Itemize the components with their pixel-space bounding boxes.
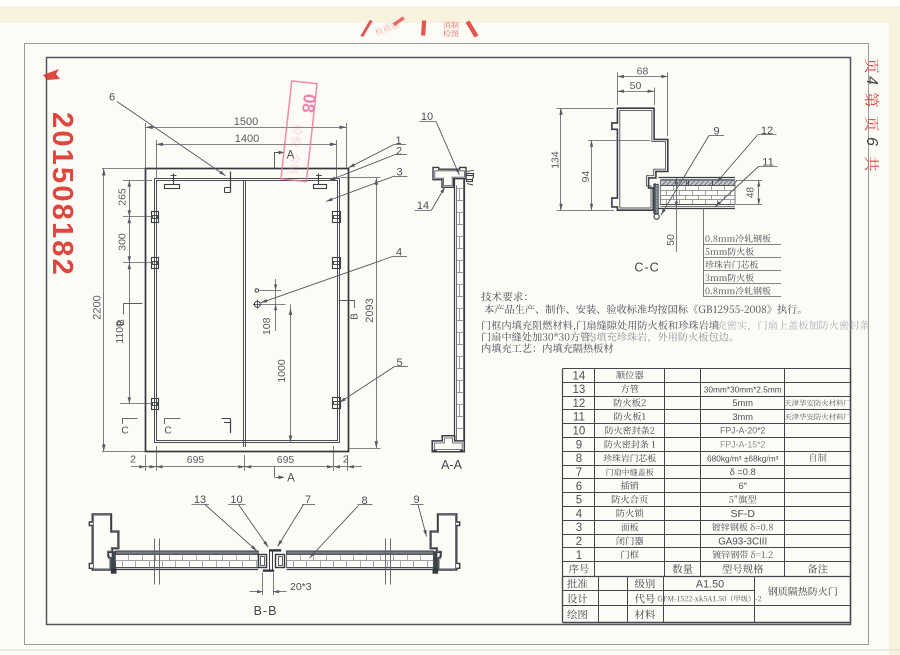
svg-text:680kg/m³ ±68kg/m³: 680kg/m³ ±68kg/m³ xyxy=(707,453,779,463)
svg-text:2: 2 xyxy=(343,454,349,466)
svg-text:9: 9 xyxy=(576,439,582,451)
svg-text:FPJ-A-15*2: FPJ-A-15*2 xyxy=(720,440,766,450)
svg-text:50: 50 xyxy=(630,80,642,92)
svg-text:SF-D: SF-D xyxy=(730,508,755,520)
svg-text:265: 265 xyxy=(117,188,129,206)
svg-text:3: 3 xyxy=(576,522,582,534)
svg-text:11: 11 xyxy=(573,412,585,424)
svg-text:8: 8 xyxy=(361,495,367,507)
svg-text:1: 1 xyxy=(576,550,582,562)
svg-text:4: 4 xyxy=(863,76,880,85)
svg-text:30mm*30mm*2.5mm: 30mm*30mm*2.5mm xyxy=(704,384,782,394)
svg-text:1000: 1000 xyxy=(276,359,288,383)
svg-text:300: 300 xyxy=(117,233,129,251)
svg-text:108: 108 xyxy=(261,317,273,335)
svg-text:GA93-3CIII: GA93-3CIII xyxy=(718,537,767,548)
svg-text:1500: 1500 xyxy=(234,116,258,128)
svg-text:4: 4 xyxy=(576,508,583,520)
svg-text:50: 50 xyxy=(665,234,677,246)
svg-text:13: 13 xyxy=(573,384,586,396)
svg-text:2200: 2200 xyxy=(92,295,104,319)
svg-text:B-B: B-B xyxy=(254,604,278,618)
svg-text:A-A: A-A xyxy=(441,458,463,472)
svg-text:695: 695 xyxy=(277,454,295,466)
svg-text:2: 2 xyxy=(396,146,402,158)
svg-text:14: 14 xyxy=(573,370,586,382)
svg-text:2: 2 xyxy=(130,454,136,466)
svg-text:C: C xyxy=(164,426,171,437)
svg-text:FPJ-A-20*2: FPJ-A-20*2 xyxy=(720,426,766,436)
svg-text:7: 7 xyxy=(576,467,582,479)
svg-text:8: 8 xyxy=(576,453,582,465)
svg-text:6: 6 xyxy=(109,92,115,104)
svg-text:3mm: 3mm xyxy=(732,412,753,422)
svg-text:C: C xyxy=(121,426,128,437)
svg-text:12: 12 xyxy=(573,398,586,410)
svg-text:134: 134 xyxy=(550,151,562,169)
svg-text:94: 94 xyxy=(580,171,592,183)
svg-text:C-C: C-C xyxy=(634,261,659,275)
svg-text:695: 695 xyxy=(187,454,205,466)
svg-text:68: 68 xyxy=(637,65,649,77)
svg-text:08: 08 xyxy=(298,93,319,114)
svg-text:A1.50: A1.50 xyxy=(696,579,724,591)
svg-text:10: 10 xyxy=(573,426,586,438)
svg-text:B: B xyxy=(116,319,127,326)
svg-text:6: 6 xyxy=(576,481,582,493)
svg-text:201508182: 201508182 xyxy=(46,112,78,277)
svg-text:6: 6 xyxy=(863,137,880,146)
svg-text:B: B xyxy=(349,313,360,320)
svg-text:δ =0.8: δ =0.8 xyxy=(730,467,756,477)
svg-text:20*3: 20*3 xyxy=(290,581,312,593)
svg-text:5: 5 xyxy=(576,495,582,507)
svg-text:2: 2 xyxy=(576,536,582,548)
svg-text:A: A xyxy=(287,473,295,485)
svg-text:5mm: 5mm xyxy=(732,398,753,408)
svg-text:2093: 2093 xyxy=(364,298,376,322)
svg-text:12: 12 xyxy=(761,125,773,137)
svg-text:1400: 1400 xyxy=(235,133,259,145)
svg-text:48: 48 xyxy=(745,187,756,199)
svg-text:5: 5 xyxy=(396,357,402,369)
svg-text:6″: 6″ xyxy=(738,481,747,492)
